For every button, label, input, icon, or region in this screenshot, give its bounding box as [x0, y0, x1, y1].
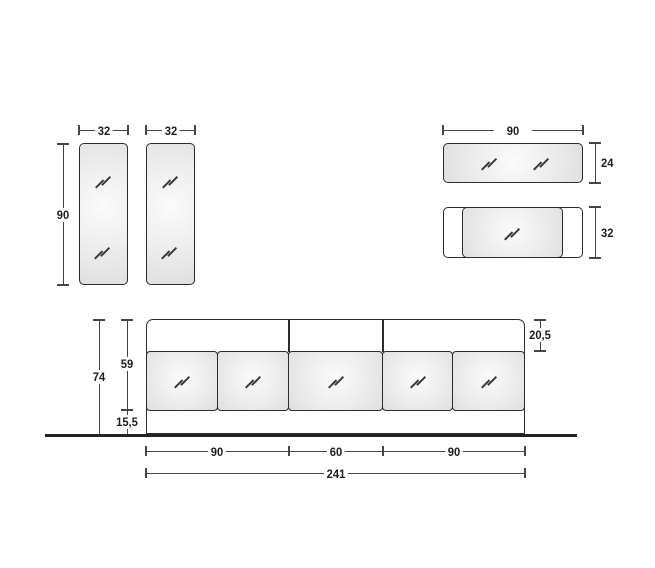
dim-label-tall-mirror-right-width: 32: [161, 124, 179, 138]
mirror-shine-icon: [173, 372, 191, 390]
dim-tick: [534, 319, 546, 321]
dim-label-total-height: 74: [90, 370, 108, 384]
furniture-dimension-drawing: 32 32 90 90 24: [0, 0, 655, 568]
dim-tick: [524, 446, 526, 456]
dim-tick: [589, 257, 601, 259]
dim-tick: [524, 468, 526, 478]
wide-mirror: [443, 143, 583, 183]
mirror-shine-icon: [94, 172, 112, 190]
dim-label-wide-mirror-height: 24: [601, 157, 613, 169]
dim-tick: [127, 125, 129, 135]
dim-label-module-2: 60: [326, 445, 344, 459]
dim-line-wide-mirror-height: [595, 143, 597, 183]
dim-tick: [121, 409, 133, 411]
floor-line: [45, 434, 577, 437]
dim-line-cabinet-height: [595, 207, 597, 258]
dim-label-tall-mirror-left-width: 32: [94, 124, 112, 138]
dim-tick: [145, 446, 147, 456]
dim-tick: [57, 284, 69, 286]
mirror-shine-icon: [532, 154, 550, 172]
tall-mirror-left: [79, 143, 128, 285]
module-divider: [382, 319, 384, 352]
dim-label-tall-mirror-height: 90: [54, 208, 72, 222]
dim-label-total-width: 241: [323, 467, 347, 481]
mirror-shine-icon: [160, 243, 178, 261]
dim-tick: [534, 350, 546, 352]
dim-tick: [589, 182, 601, 184]
dim-label-cabinet-height: 32: [601, 227, 613, 239]
dim-label-top-inset: 20,5: [526, 328, 553, 342]
dim-tick: [121, 319, 133, 321]
mirror-shine-icon: [244, 372, 262, 390]
dim-tick: [78, 125, 80, 135]
dim-tick: [145, 468, 147, 478]
tall-mirror-right: [146, 143, 195, 285]
mirror-shine-icon: [327, 372, 345, 390]
module-divider: [288, 319, 290, 352]
dim-label-plinth-height: 15,5: [113, 415, 140, 429]
mirror-shine-icon: [93, 243, 111, 261]
dim-label-module-1: 90: [208, 445, 226, 459]
dim-tick: [194, 125, 196, 135]
dim-tick: [589, 206, 601, 208]
dim-tick: [93, 319, 105, 321]
dim-tick: [442, 125, 444, 135]
dim-tick: [589, 142, 601, 144]
dim-tick: [145, 125, 147, 135]
mirror-shine-icon: [503, 224, 521, 242]
dim-label-module-3: 90: [444, 445, 462, 459]
mirror-shine-icon: [161, 172, 179, 190]
dim-tick: [57, 143, 69, 145]
mirror-shine-icon: [480, 154, 498, 172]
dim-tick: [382, 446, 384, 456]
mirror-shine-icon: [480, 372, 498, 390]
dim-tick: [582, 125, 584, 135]
dim-label-upper-height: 59: [118, 357, 136, 371]
dim-label-wide-units-width: 90: [494, 124, 532, 138]
mirror-shine-icon: [409, 372, 427, 390]
dim-tick: [288, 446, 290, 456]
